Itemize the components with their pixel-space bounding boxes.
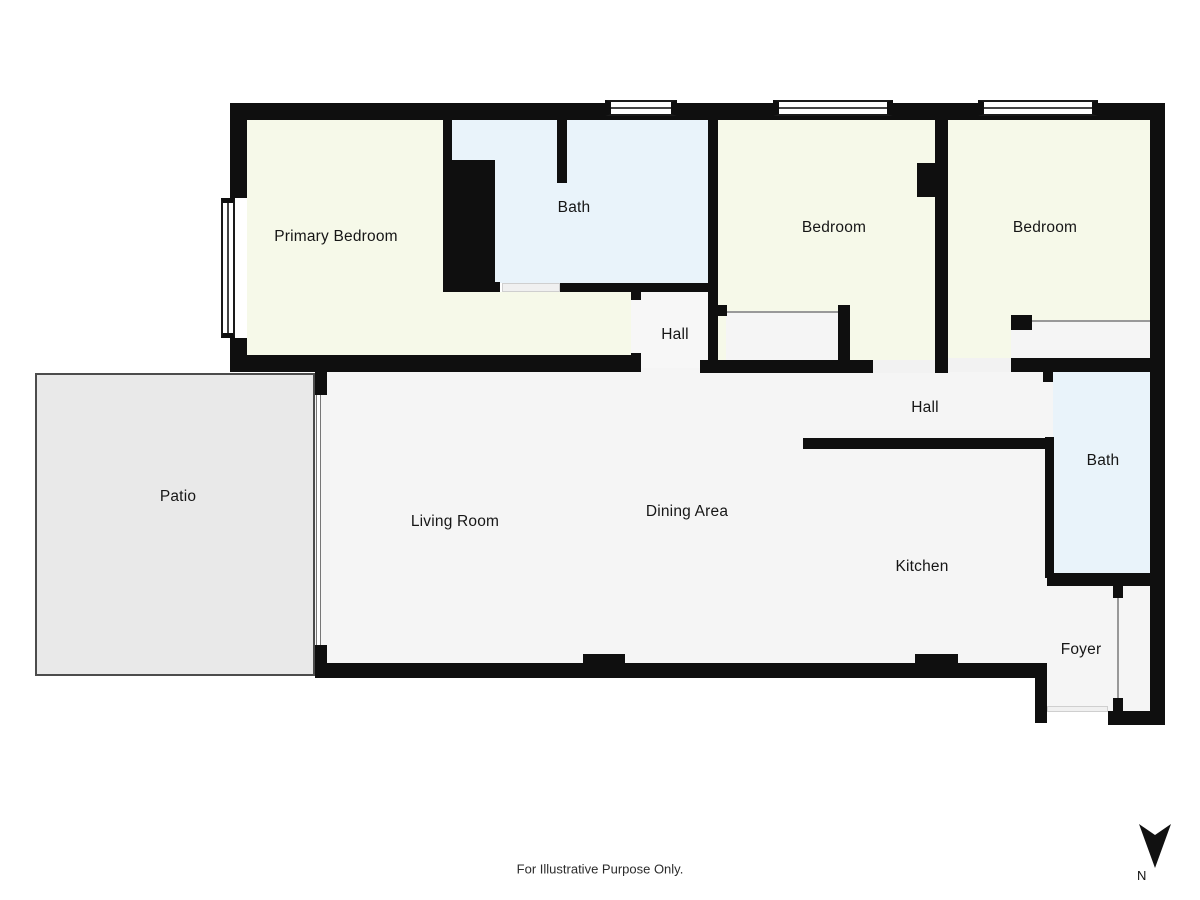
wall-bedroom-right-bottom — [1011, 358, 1150, 372]
patio-deck — [35, 373, 315, 676]
wall-bottom-post-2 — [915, 654, 958, 663]
plumbing-block — [443, 160, 495, 282]
closet-mid-jamb-left — [718, 305, 727, 316]
wall-hall-top-left-a — [631, 283, 641, 300]
disclaimer-text: For Illustrative Purpose Only. — [517, 862, 684, 877]
floor-plan: Primary Bedroom Bath Bedroom Bedroom Hal… — [0, 0, 1200, 900]
room-label-bath-top: Bath — [558, 199, 591, 217]
wall-bedrooms-divider — [935, 120, 948, 373]
bath-right-floor — [1053, 372, 1150, 573]
room-label-patio: Patio — [160, 488, 196, 506]
room-label-hall-right: Hall — [911, 399, 939, 417]
wall-bath-right-stub-top — [1043, 368, 1053, 382]
primary-bedroom-floor-extension — [443, 292, 631, 355]
room-label-dining-area: Dining Area — [646, 503, 728, 521]
closet-mid-door-line — [727, 311, 838, 313]
window-pane-line — [611, 107, 671, 109]
north-compass: N — [1136, 824, 1176, 884]
room-label-primary-bedroom: Primary Bedroom — [274, 228, 398, 246]
patio-door-jamb-bottom — [315, 645, 327, 678]
window-pane-line — [779, 107, 887, 109]
north-arrow-icon — [1136, 824, 1174, 868]
window-pane-line — [227, 203, 229, 333]
closet-mid-floor — [726, 312, 840, 360]
bedroom-mid-door-gap — [873, 360, 935, 373]
bath-top-door-threshold — [502, 283, 560, 292]
patio-door-jamb-top — [315, 368, 327, 395]
closet-mid-wall-right — [838, 305, 850, 360]
wall-hall-kitchen-divider — [803, 438, 1047, 449]
wall-right — [1150, 103, 1165, 725]
north-label: N — [1137, 868, 1146, 883]
window-pane-line — [984, 107, 1092, 109]
foyer-closet-door-line — [1117, 598, 1119, 698]
closet-right-door-line — [1032, 320, 1150, 322]
window-top-bath — [605, 100, 677, 116]
room-label-hall-top: Hall — [661, 326, 689, 344]
wall-bath-top-stub — [557, 120, 567, 183]
room-label-bedroom-mid: Bedroom — [802, 219, 866, 237]
room-label-kitchen: Kitchen — [895, 558, 948, 576]
bedroom-right-door-gap — [948, 358, 1011, 372]
foyer-closet-jamb-bottom — [1113, 698, 1123, 711]
room-label-bath-right: Bath — [1087, 452, 1120, 470]
plumbing-block-base — [443, 282, 500, 292]
foyer-closet-jamb-top — [1113, 586, 1123, 598]
wall-hall-closet-bottom — [700, 360, 873, 373]
wall-foyer-bottom — [1108, 711, 1165, 725]
window-top-bedroom-right — [978, 100, 1098, 116]
room-label-foyer: Foyer — [1061, 641, 1102, 659]
room-label-bedroom-right: Bedroom — [1013, 219, 1077, 237]
wall-bath-top-left — [443, 120, 452, 160]
window-left-primary-bedroom — [221, 198, 235, 338]
wall-left-upper — [230, 120, 247, 198]
wall-hall-top-left-b — [631, 353, 641, 368]
wall-bath-right-left — [1045, 437, 1054, 578]
room-label-living-room: Living Room — [411, 513, 499, 531]
wall-bedrooms-divider-bump — [917, 163, 935, 197]
patio-sliding-door — [316, 395, 321, 645]
wall-foyer-left — [1035, 663, 1047, 723]
foyer-entry-threshold — [1047, 706, 1108, 712]
closet-right-jamb — [1011, 315, 1032, 330]
wall-bath-right-bottom — [1047, 573, 1165, 586]
window-top-bedroom-mid — [773, 100, 893, 116]
wall-bottom-post-1 — [583, 654, 625, 663]
wall-primary-bedroom-bottom — [230, 355, 641, 372]
wall-bath-bedroom-divider — [708, 120, 718, 373]
wall-bottom-main — [315, 663, 1046, 678]
